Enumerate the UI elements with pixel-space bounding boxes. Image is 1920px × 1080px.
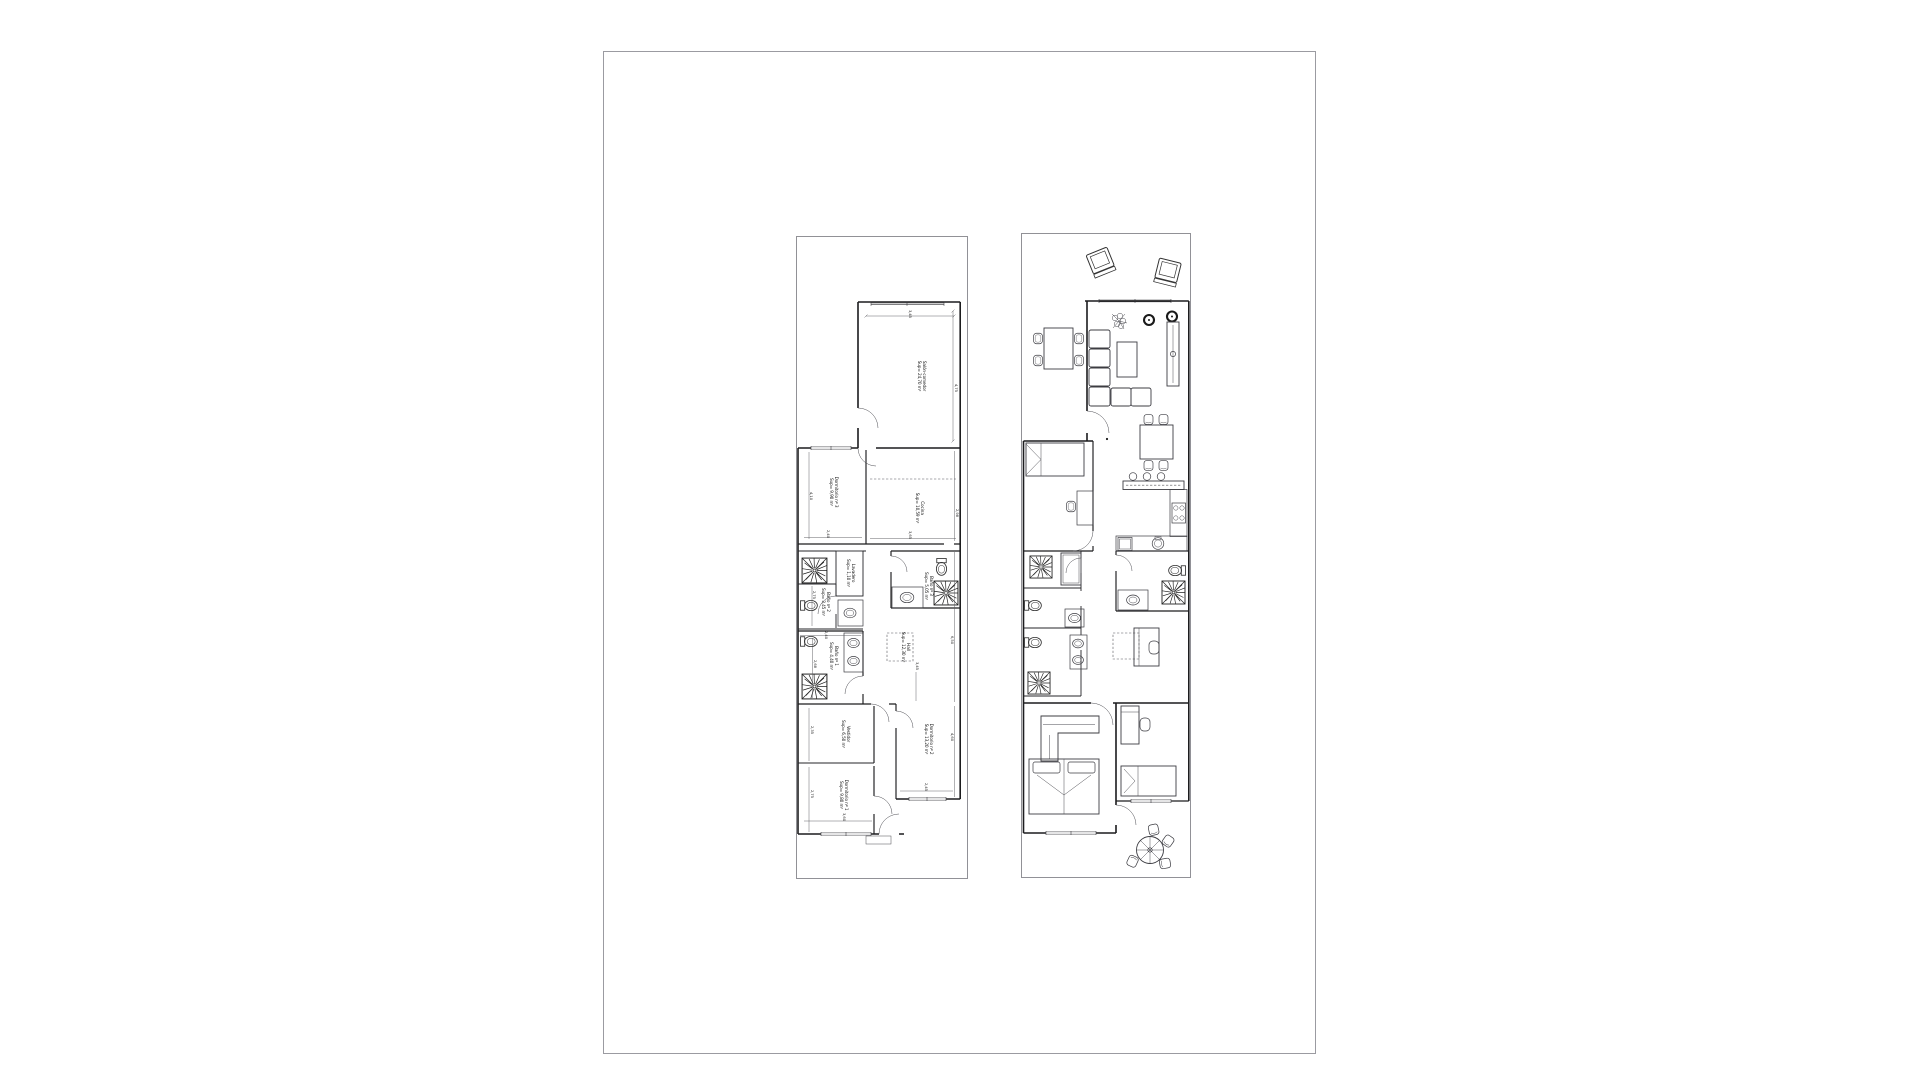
cooktop-icon — [1172, 503, 1186, 523]
dishwasher-icon — [1118, 538, 1132, 551]
dining-table — [1034, 328, 1084, 369]
armchair-icon — [1086, 247, 1116, 278]
walls — [798, 302, 960, 834]
toilet-icon — [1024, 637, 1041, 647]
dimension-label: 2,75 — [812, 591, 816, 599]
room-area-label: Sup= 4,40 m² — [829, 642, 834, 670]
dimension-label: 4,75 — [954, 384, 958, 392]
double-bed — [1029, 759, 1099, 814]
dimension-label: 2,40 — [826, 530, 830, 539]
plant-icon — [1112, 313, 1127, 329]
wardrobe — [1041, 716, 1099, 761]
room-area-label: Sup= 24,70 m² — [917, 361, 922, 392]
coffee-table — [1117, 342, 1137, 377]
room-area-label: Sup= 6,50 m² — [841, 720, 846, 748]
extractor-fan-icon — [1028, 672, 1050, 694]
armchair-icon — [1154, 258, 1182, 287]
bar-stool — [1157, 473, 1165, 481]
terrace-furniture — [1086, 247, 1181, 287]
washbasin — [1070, 635, 1087, 669]
laundry-baths-furniture — [1024, 553, 1185, 694]
dimension-label: 2,98 — [955, 509, 959, 518]
dimension-label: 2,68 — [813, 660, 817, 669]
dimension-label: 2,75 — [810, 790, 814, 798]
floor-plan-dimensioned: Salón-comedorSup= 24,70 m²Dormitorio nº … — [796, 236, 968, 879]
door-stop — [1106, 438, 1108, 440]
master-bedroom-furniture — [1029, 706, 1176, 814]
toilet-icon — [800, 636, 817, 646]
washbasin — [838, 600, 863, 626]
toilet-icon — [800, 600, 817, 610]
drawing-sheet: Salón-comedorSup= 24,70 m²Dormitorio nº … — [603, 51, 1316, 1054]
room-area-label: Sup= 9,80 m² — [839, 781, 844, 809]
room-area-label: Sup= 3,45 m² — [821, 588, 826, 616]
room-labels: Salón-comedorSup= 24,70 m²Dormitorio nº … — [821, 361, 934, 811]
dimension-label: 4,60 — [950, 733, 954, 742]
bar-stool — [1129, 473, 1137, 481]
dimension-label: 2,35 — [810, 726, 814, 734]
dimension-labels: 3,454,754,102,403,652,982,752,402,683,45… — [809, 310, 959, 822]
toilet-icon — [1169, 565, 1186, 575]
doors — [1066, 411, 1136, 825]
desk — [1121, 706, 1150, 744]
floor-plan-furnished — [1021, 233, 1191, 878]
washing-machine-icon — [1061, 553, 1081, 585]
toilet-icon — [936, 558, 946, 575]
tv-sideboard — [1167, 322, 1179, 386]
toilet-icon — [1024, 600, 1041, 610]
dimension-label: 3,45 — [915, 662, 919, 670]
kitchen-counter — [1170, 490, 1187, 537]
site-boundary — [797, 237, 968, 879]
extractor-fan-icon — [1162, 581, 1185, 604]
dining-table — [1140, 415, 1173, 471]
side-table-icon — [1144, 312, 1177, 326]
extractor-fan-icon — [802, 674, 827, 699]
washbasin — [844, 633, 863, 672]
dimension-label: 2,45 — [924, 783, 928, 791]
sink-icon — [1152, 537, 1164, 550]
kitchen-furniture — [1116, 473, 1187, 551]
bar-stool — [1143, 473, 1151, 481]
washbasin — [1118, 590, 1148, 610]
extractor-fan-icon — [802, 558, 827, 583]
entry-step — [866, 836, 891, 844]
desk — [1077, 491, 1093, 525]
dimension-label: 6,50 — [950, 636, 954, 645]
bedroom1-furniture — [1026, 443, 1093, 525]
dimension-label: 3,45 — [908, 310, 912, 318]
room-area-label: Sup= 13,20 m² — [924, 724, 929, 755]
single-bed — [1121, 766, 1176, 796]
dimension-label: 4,10 — [809, 492, 813, 501]
bed — [1026, 443, 1084, 476]
fixtures — [800, 479, 957, 844]
room-area-label: Sup= 1,10 m² — [846, 559, 851, 587]
living-room-furniture — [1034, 312, 1179, 471]
washbasin — [892, 587, 923, 608]
garden-table-icon — [1137, 837, 1164, 864]
dimension-label: 2,40 — [824, 631, 828, 640]
dimension-label: 3,65 — [908, 531, 912, 539]
extractor-fan-icon — [1030, 556, 1052, 578]
sofa — [1089, 330, 1151, 406]
room-area-label: Sup= 5,05 m² — [924, 572, 929, 600]
room-area-label: Sup= 9,90 m² — [829, 478, 834, 506]
room-area-label: Sup= 12,30 m² — [901, 632, 906, 663]
dimension-label: 3,60 — [842, 813, 846, 822]
windows — [1046, 299, 1171, 835]
room-area-label: Sup= 10,59 m² — [915, 493, 920, 524]
study-desk — [1113, 628, 1159, 666]
garden-furniture — [1126, 824, 1175, 870]
